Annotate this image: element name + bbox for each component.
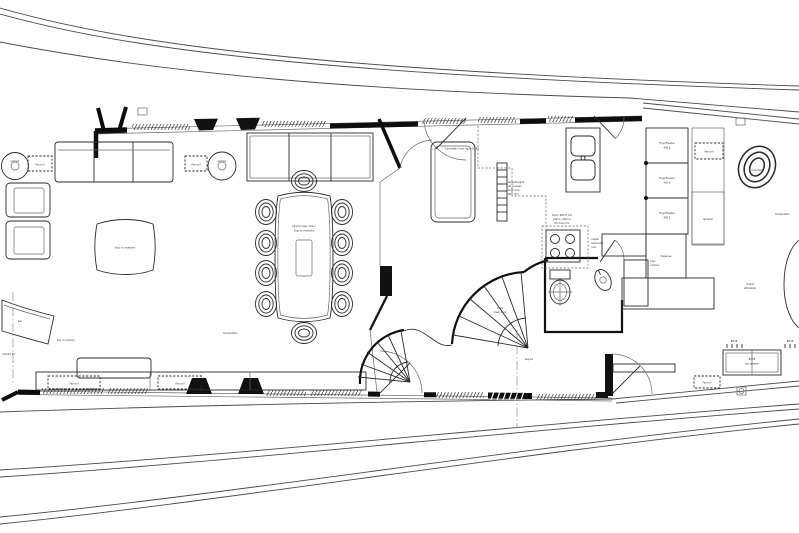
cooktop-note: forno 900 E CO — [552, 213, 572, 217]
crew-stairs — [622, 278, 714, 309]
deck-plan-drawing: Fancoil Fancoil Fancoil Fancoil Fancoil … — [0, 0, 799, 533]
oven-unit — [431, 142, 475, 222]
deck-cleat-right — [736, 118, 745, 125]
wall-post — [605, 354, 613, 396]
worktop-outline — [478, 126, 546, 230]
dining-table — [275, 192, 333, 322]
armchair-starboard — [732, 140, 782, 194]
wardrobe-label: armadio — [703, 218, 713, 221]
window-strip — [266, 390, 306, 396]
equipped-unit-note: mobile — [746, 283, 755, 286]
fancoil-label: Fancoil — [176, 382, 185, 386]
window-strip — [422, 118, 466, 124]
wall-segment — [95, 130, 127, 131]
fridge-label: 400 lt — [664, 217, 671, 220]
hood-note: aspirante — [591, 241, 604, 245]
dining-chair — [332, 200, 353, 225]
wardrobe-locker — [692, 128, 724, 245]
dining-chair — [256, 231, 277, 256]
tv-cabinet-label: mobile TV — [2, 352, 15, 356]
dining-area — [247, 133, 373, 344]
hood-note: cappa — [591, 238, 599, 241]
dining-chair — [292, 323, 317, 344]
cooktop — [542, 226, 588, 268]
dining-table-label: top in marble — [294, 229, 314, 233]
speaker-tick-label: BOSE — [731, 340, 738, 343]
starboard-side — [694, 140, 799, 395]
fancoil-label: Fancoil — [70, 382, 79, 386]
window-strip — [132, 124, 190, 130]
speaker-cabinet-label: top speaker — [745, 363, 759, 366]
speaker-cabinet-label: BOSE — [749, 358, 756, 361]
side-table-lamp — [2, 153, 29, 180]
fridge-label: 400 lt — [664, 182, 671, 185]
door-jamb — [236, 118, 260, 130]
fancoil-label: Fancoil — [705, 150, 714, 154]
wet-bar-label: wet bar — [217, 160, 226, 163]
stairs-note: lower deck — [494, 311, 508, 314]
armchair-left-1 — [6, 183, 50, 217]
table-centerpiece — [296, 240, 312, 276]
dining-chair — [256, 200, 277, 225]
stair-connector — [404, 329, 452, 345]
dining-chair — [332, 231, 353, 256]
pantry-label: dispensa — [661, 255, 672, 258]
washbasin — [592, 267, 615, 293]
door-swing-arc — [615, 240, 624, 260]
crew-note: cantina — [650, 264, 659, 267]
window-strip — [478, 117, 516, 123]
moquette-label: moquette — [775, 212, 790, 216]
tv-cabinet-curved — [2, 300, 54, 344]
armchair-label: armchair — [751, 168, 764, 172]
equipped-unit-note: attrezzato — [744, 287, 757, 290]
top-wall — [95, 107, 642, 160]
door-swing-arc — [400, 140, 432, 168]
door-leaf — [612, 366, 640, 394]
fancoil-label: Fancoil — [703, 381, 712, 385]
sofa — [55, 142, 173, 182]
spiral-staircase — [358, 260, 548, 428]
fancoil-label: Fancoil — [36, 163, 45, 167]
sopra-label: sopra — [525, 357, 534, 361]
speaker-ticks — [727, 344, 795, 348]
fridge-label: 400 lt — [664, 147, 671, 150]
door-jamb — [186, 378, 212, 394]
window-strip — [262, 121, 326, 127]
fancoil-label: Fancoil — [192, 163, 201, 167]
window-strip — [108, 388, 148, 394]
undercounter-unit — [602, 234, 646, 256]
door-jamb — [238, 378, 264, 394]
bulwark-gate — [98, 107, 126, 131]
crew-note: frigo — [650, 260, 656, 263]
dishwasher-note: da incasso — [508, 184, 522, 188]
moquette-label: moquette — [223, 331, 238, 335]
bar-unit-label: bar — [18, 319, 23, 323]
side-table-lamp — [208, 152, 236, 180]
coffee-table-label: top in marble — [115, 246, 135, 250]
wc-walls — [545, 258, 622, 332]
galley-sink — [566, 128, 600, 192]
dining-table-label: tavolo per dieci — [292, 224, 315, 228]
wall-post — [596, 392, 608, 398]
window-strip — [310, 390, 362, 396]
day-head — [545, 240, 624, 332]
tv-top-label: top in marble — [57, 338, 75, 342]
plan-labels: Fancoil Fancoil Fancoil Fancoil Fancoil … — [2, 142, 794, 386]
stairs-note: scala — [497, 307, 504, 310]
credenza — [247, 133, 373, 181]
stair-wall — [380, 266, 392, 296]
window-strip — [548, 116, 573, 122]
hood-note: inox — [591, 245, 597, 249]
deck-cleat-left — [138, 108, 147, 115]
wet-bar-label: wet bar — [10, 160, 19, 163]
fridge-label: Frigo/Freezer — [659, 142, 674, 145]
dishwasher-note: 600 mm — [508, 192, 519, 196]
aft-sofa — [77, 358, 151, 378]
armchair-left-2 — [6, 221, 50, 259]
dishwasher-note: sotto top — [508, 188, 520, 192]
dining-chair — [256, 292, 277, 317]
fridge-label: Frigo/Freezer — [659, 177, 674, 180]
window-strip — [436, 392, 484, 398]
galley — [431, 126, 724, 309]
fridge-label: Frigo/Freezer — [659, 212, 674, 215]
bottom-wall — [2, 351, 675, 401]
aft-window-strip — [613, 364, 675, 372]
counter-ladder — [497, 163, 507, 221]
cooktop-note: filo top mm — [555, 221, 570, 225]
window-strip — [536, 394, 596, 400]
dining-chair — [332, 261, 353, 286]
hull-lines — [0, 8, 799, 524]
aft-oval-structure — [784, 238, 799, 330]
door-jamb — [194, 119, 218, 131]
undercounter-unit — [624, 260, 648, 306]
sink-note: Ceramtec liner ligne LT 90 — [445, 147, 479, 151]
cooktop-note: piano cottura — [553, 217, 571, 221]
dining-chair — [256, 261, 277, 286]
speaker-tick-label: BOSE — [787, 340, 794, 343]
door-leaf — [380, 363, 410, 393]
dining-chair — [332, 292, 353, 317]
dishwasher-note: lavastoviglie — [508, 180, 525, 184]
yacht-deck-plan: Fancoil Fancoil Fancoil Fancoil Fancoil … — [0, 0, 799, 533]
toilet-tank — [550, 270, 570, 279]
